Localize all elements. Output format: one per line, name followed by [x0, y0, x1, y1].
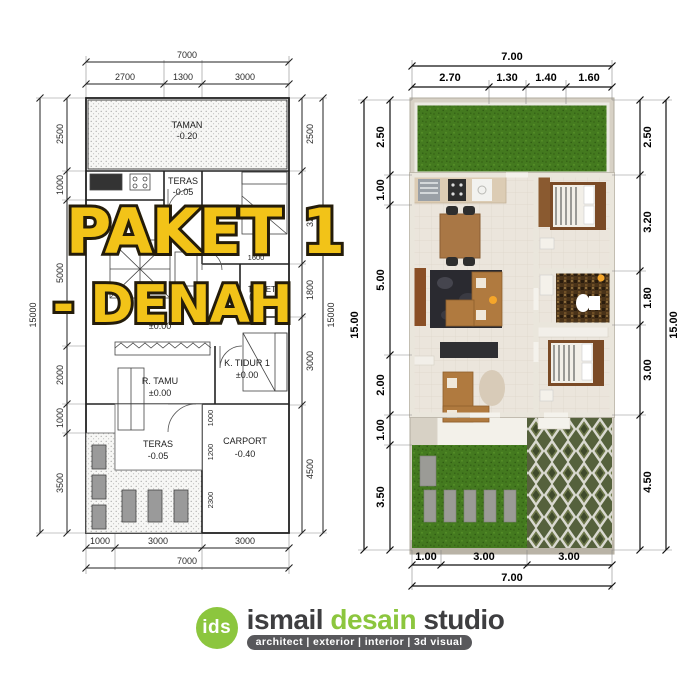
- dim-text: 7.00: [501, 572, 522, 584]
- logo-text-block: ismail desain studio architect | exterio…: [247, 606, 505, 650]
- dim-text: 2.50: [642, 126, 654, 147]
- dim-text: 1.00: [415, 551, 436, 563]
- overlay-title: PAKET 1 - DENAH: [53, 195, 344, 335]
- logo-title: ismail desain studio: [247, 606, 505, 634]
- right-floorplan-3d: 7.00 2.70 1.30 1.40 1.60 1.00 3.00 3.00 …: [349, 51, 680, 590]
- dim-text: 3.50: [375, 486, 387, 507]
- room-level-r-tamu: ±0.00: [149, 388, 171, 398]
- poster-canvas: 7000 2700 1300 3000 1000 3000 3000 7000 …: [0, 0, 700, 700]
- logo-word-desain: desain: [330, 604, 416, 635]
- dim-text: 3.00: [473, 551, 494, 563]
- logo-tagline: architect | exterior | interior | 3d vis…: [247, 635, 472, 650]
- dim-text: 7000: [177, 50, 197, 60]
- dim-text: 3500: [55, 473, 65, 493]
- right-carport: [527, 415, 612, 548]
- room-label-k-tidur: K. TIDUR 1: [224, 358, 270, 368]
- dim-text: 15.00: [668, 311, 680, 339]
- dim-text: 2300: [206, 492, 215, 509]
- dim-text: 4.50: [642, 471, 654, 492]
- dim-text: 2.00: [375, 374, 387, 395]
- room-label-teras-bottom: TERAS: [143, 439, 173, 449]
- dim-text: 3.00: [642, 359, 654, 380]
- dim-text: 1.80: [642, 287, 654, 308]
- dim-text: 15.00: [349, 311, 361, 339]
- overlay-title-line1: PAKET 1: [66, 195, 344, 268]
- dim-text: 1.60: [578, 72, 599, 84]
- studio-logo: ids ismail desain studio architect | ext…: [0, 606, 700, 650]
- dim-text: 2500: [305, 124, 315, 144]
- dim-text: 1000: [206, 410, 215, 427]
- dim-text: 1000: [55, 175, 65, 195]
- room-label-taman: TAMAN: [172, 120, 203, 130]
- room-level-carport: -0.40: [235, 449, 256, 459]
- dim-text: 2.70: [439, 72, 460, 84]
- dim-text: 7.00: [501, 51, 522, 63]
- dim-text: 1.00: [375, 419, 387, 440]
- logo-word-studio: studio: [423, 604, 504, 635]
- room-label-teras-top: TERAS: [168, 176, 198, 186]
- logo-word-ismail: ismail: [247, 604, 323, 635]
- dim-text: 3000: [148, 536, 168, 546]
- dim-text: 7000: [177, 556, 197, 566]
- dim-text: 3.20: [642, 211, 654, 232]
- room-level-taman: -0.20: [177, 131, 198, 141]
- right-front-garden: [416, 104, 608, 173]
- dim-text: 1.40: [535, 72, 556, 84]
- dim-text: 1.30: [496, 72, 517, 84]
- dim-text: 3000: [305, 351, 315, 371]
- dim-text: 1.00: [375, 179, 387, 200]
- dim-text: 1000: [55, 408, 65, 428]
- dim-text: 1300: [173, 72, 193, 82]
- room-level-teras-bottom: -0.05: [148, 451, 169, 461]
- dim-text: 2500: [55, 124, 65, 144]
- logo-badge-text: ids: [202, 617, 231, 639]
- room-label-r-tamu: R. TAMU: [142, 376, 178, 386]
- poster: { "overlay": { "line1": "PAKET 1", "line…: [0, 0, 700, 700]
- dim-text: 2000: [55, 365, 65, 385]
- overlay-title-line2: - DENAH: [53, 275, 292, 335]
- dim-text: 1000: [90, 536, 110, 546]
- dim-text: 3000: [235, 536, 255, 546]
- dim-text: 1200: [206, 444, 215, 461]
- dim-text: 15000: [28, 302, 38, 327]
- logo-badge-circle: ids: [196, 607, 238, 649]
- dim-text: 3.00: [558, 551, 579, 563]
- dim-text: 2.50: [375, 126, 387, 147]
- room-level-k-tidur: ±0.00: [236, 370, 258, 380]
- dim-text: 2700: [115, 72, 135, 82]
- dim-text: 4500: [305, 459, 315, 479]
- room-label-carport: CARPORT: [223, 436, 267, 446]
- dim-text: 15000: [326, 302, 336, 327]
- dim-text: 5.00: [375, 269, 387, 290]
- dim-text: 3000: [235, 72, 255, 82]
- dim-text: 1800: [305, 280, 315, 300]
